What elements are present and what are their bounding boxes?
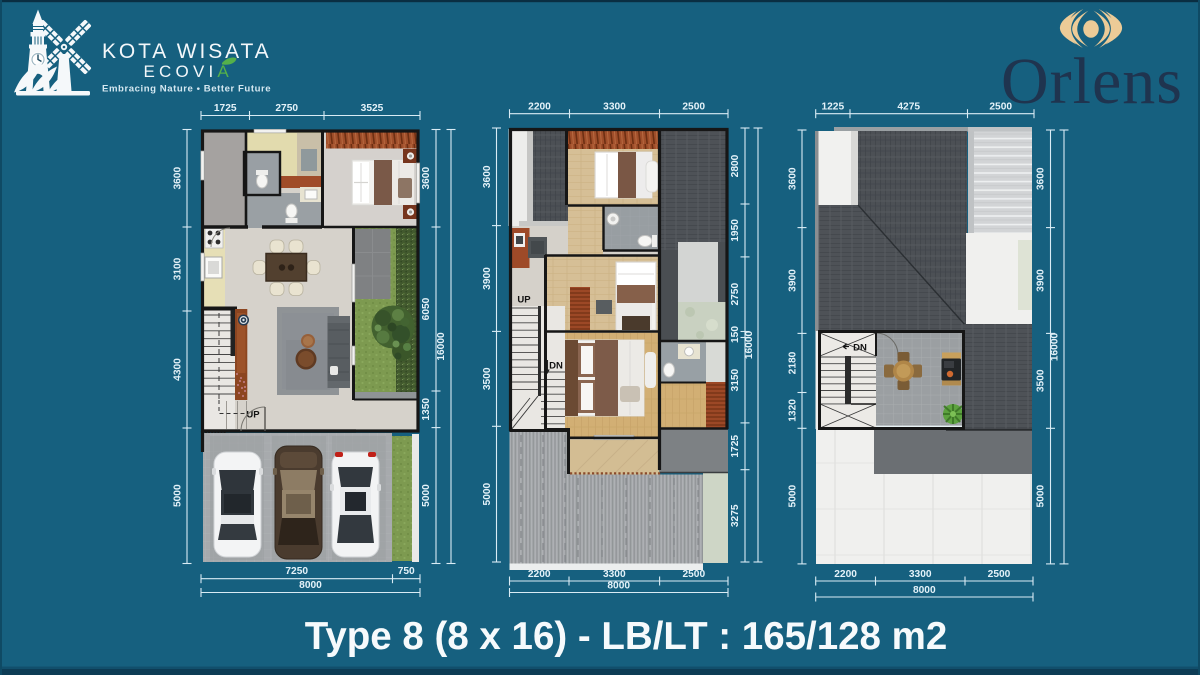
svg-text:3300: 3300 xyxy=(909,569,932,580)
svg-text:3300: 3300 xyxy=(603,569,626,580)
svg-text:750: 750 xyxy=(398,566,415,577)
svg-text:3500: 3500 xyxy=(1036,369,1047,392)
svg-text:3300: 3300 xyxy=(603,101,626,112)
svg-text:8000: 8000 xyxy=(607,581,630,592)
svg-text:Embracing Nature • Better Futu: Embracing Nature • Better Future xyxy=(102,84,271,95)
svg-text:2800: 2800 xyxy=(730,154,741,177)
svg-text:1950: 1950 xyxy=(730,219,741,242)
svg-text:ECOVIA: ECOVIA xyxy=(144,62,233,81)
svg-text:2200: 2200 xyxy=(528,101,551,112)
svg-text:3525: 3525 xyxy=(361,103,384,114)
svg-text:1225: 1225 xyxy=(821,101,844,112)
svg-text:Orlens: Orlens xyxy=(1001,45,1183,118)
svg-text:16000: 16000 xyxy=(436,332,447,361)
svg-text:Type 8 (8 x 16) - LB/LT : 165/: Type 8 (8 x 16) - LB/LT : 165/128 m2 xyxy=(305,615,948,658)
svg-text:6050: 6050 xyxy=(421,297,432,320)
svg-text:16000: 16000 xyxy=(1050,333,1061,362)
svg-text:DN: DN xyxy=(853,343,867,354)
svg-text:16000: 16000 xyxy=(744,331,755,360)
svg-text:DN: DN xyxy=(549,361,563,372)
svg-text:8000: 8000 xyxy=(913,585,936,596)
svg-text:3600: 3600 xyxy=(421,167,432,190)
svg-text:5000: 5000 xyxy=(788,484,799,507)
svg-text:3500: 3500 xyxy=(482,367,493,390)
svg-text:3275: 3275 xyxy=(730,504,741,527)
svg-text:150: 150 xyxy=(730,326,741,343)
svg-text:UP: UP xyxy=(517,295,531,306)
svg-text:8000: 8000 xyxy=(299,580,322,591)
svg-text:2750: 2750 xyxy=(275,103,298,114)
svg-text:1320: 1320 xyxy=(788,399,799,422)
svg-text:3600: 3600 xyxy=(482,165,493,188)
svg-text:4300: 4300 xyxy=(173,358,184,381)
svg-text:5000: 5000 xyxy=(1036,484,1047,507)
svg-text:1725: 1725 xyxy=(730,435,741,458)
svg-text:3600: 3600 xyxy=(173,167,184,190)
svg-text:UP: UP xyxy=(246,410,260,421)
svg-text:3150: 3150 xyxy=(730,368,741,391)
svg-text:KOTA WISATA: KOTA WISATA xyxy=(102,40,272,63)
svg-text:1350: 1350 xyxy=(421,398,432,421)
svg-text:2200: 2200 xyxy=(528,569,551,580)
svg-text:3900: 3900 xyxy=(482,267,493,290)
svg-text:3600: 3600 xyxy=(788,167,799,190)
svg-text:3900: 3900 xyxy=(788,269,799,292)
svg-text:2500: 2500 xyxy=(682,569,705,580)
svg-text:4275: 4275 xyxy=(897,101,920,112)
svg-text:3100: 3100 xyxy=(173,257,184,280)
svg-text:5000: 5000 xyxy=(482,482,493,505)
svg-text:3900: 3900 xyxy=(1036,269,1047,292)
svg-text:2750: 2750 xyxy=(730,283,741,306)
svg-text:3600: 3600 xyxy=(1036,167,1047,190)
svg-text:7250: 7250 xyxy=(285,566,308,577)
svg-text:2500: 2500 xyxy=(988,569,1011,580)
svg-text:5000: 5000 xyxy=(421,484,432,507)
svg-text:2500: 2500 xyxy=(682,101,705,112)
svg-text:1725: 1725 xyxy=(214,103,237,114)
svg-text:2180: 2180 xyxy=(788,351,799,374)
svg-text:5000: 5000 xyxy=(173,484,184,507)
svg-text:2200: 2200 xyxy=(834,569,857,580)
